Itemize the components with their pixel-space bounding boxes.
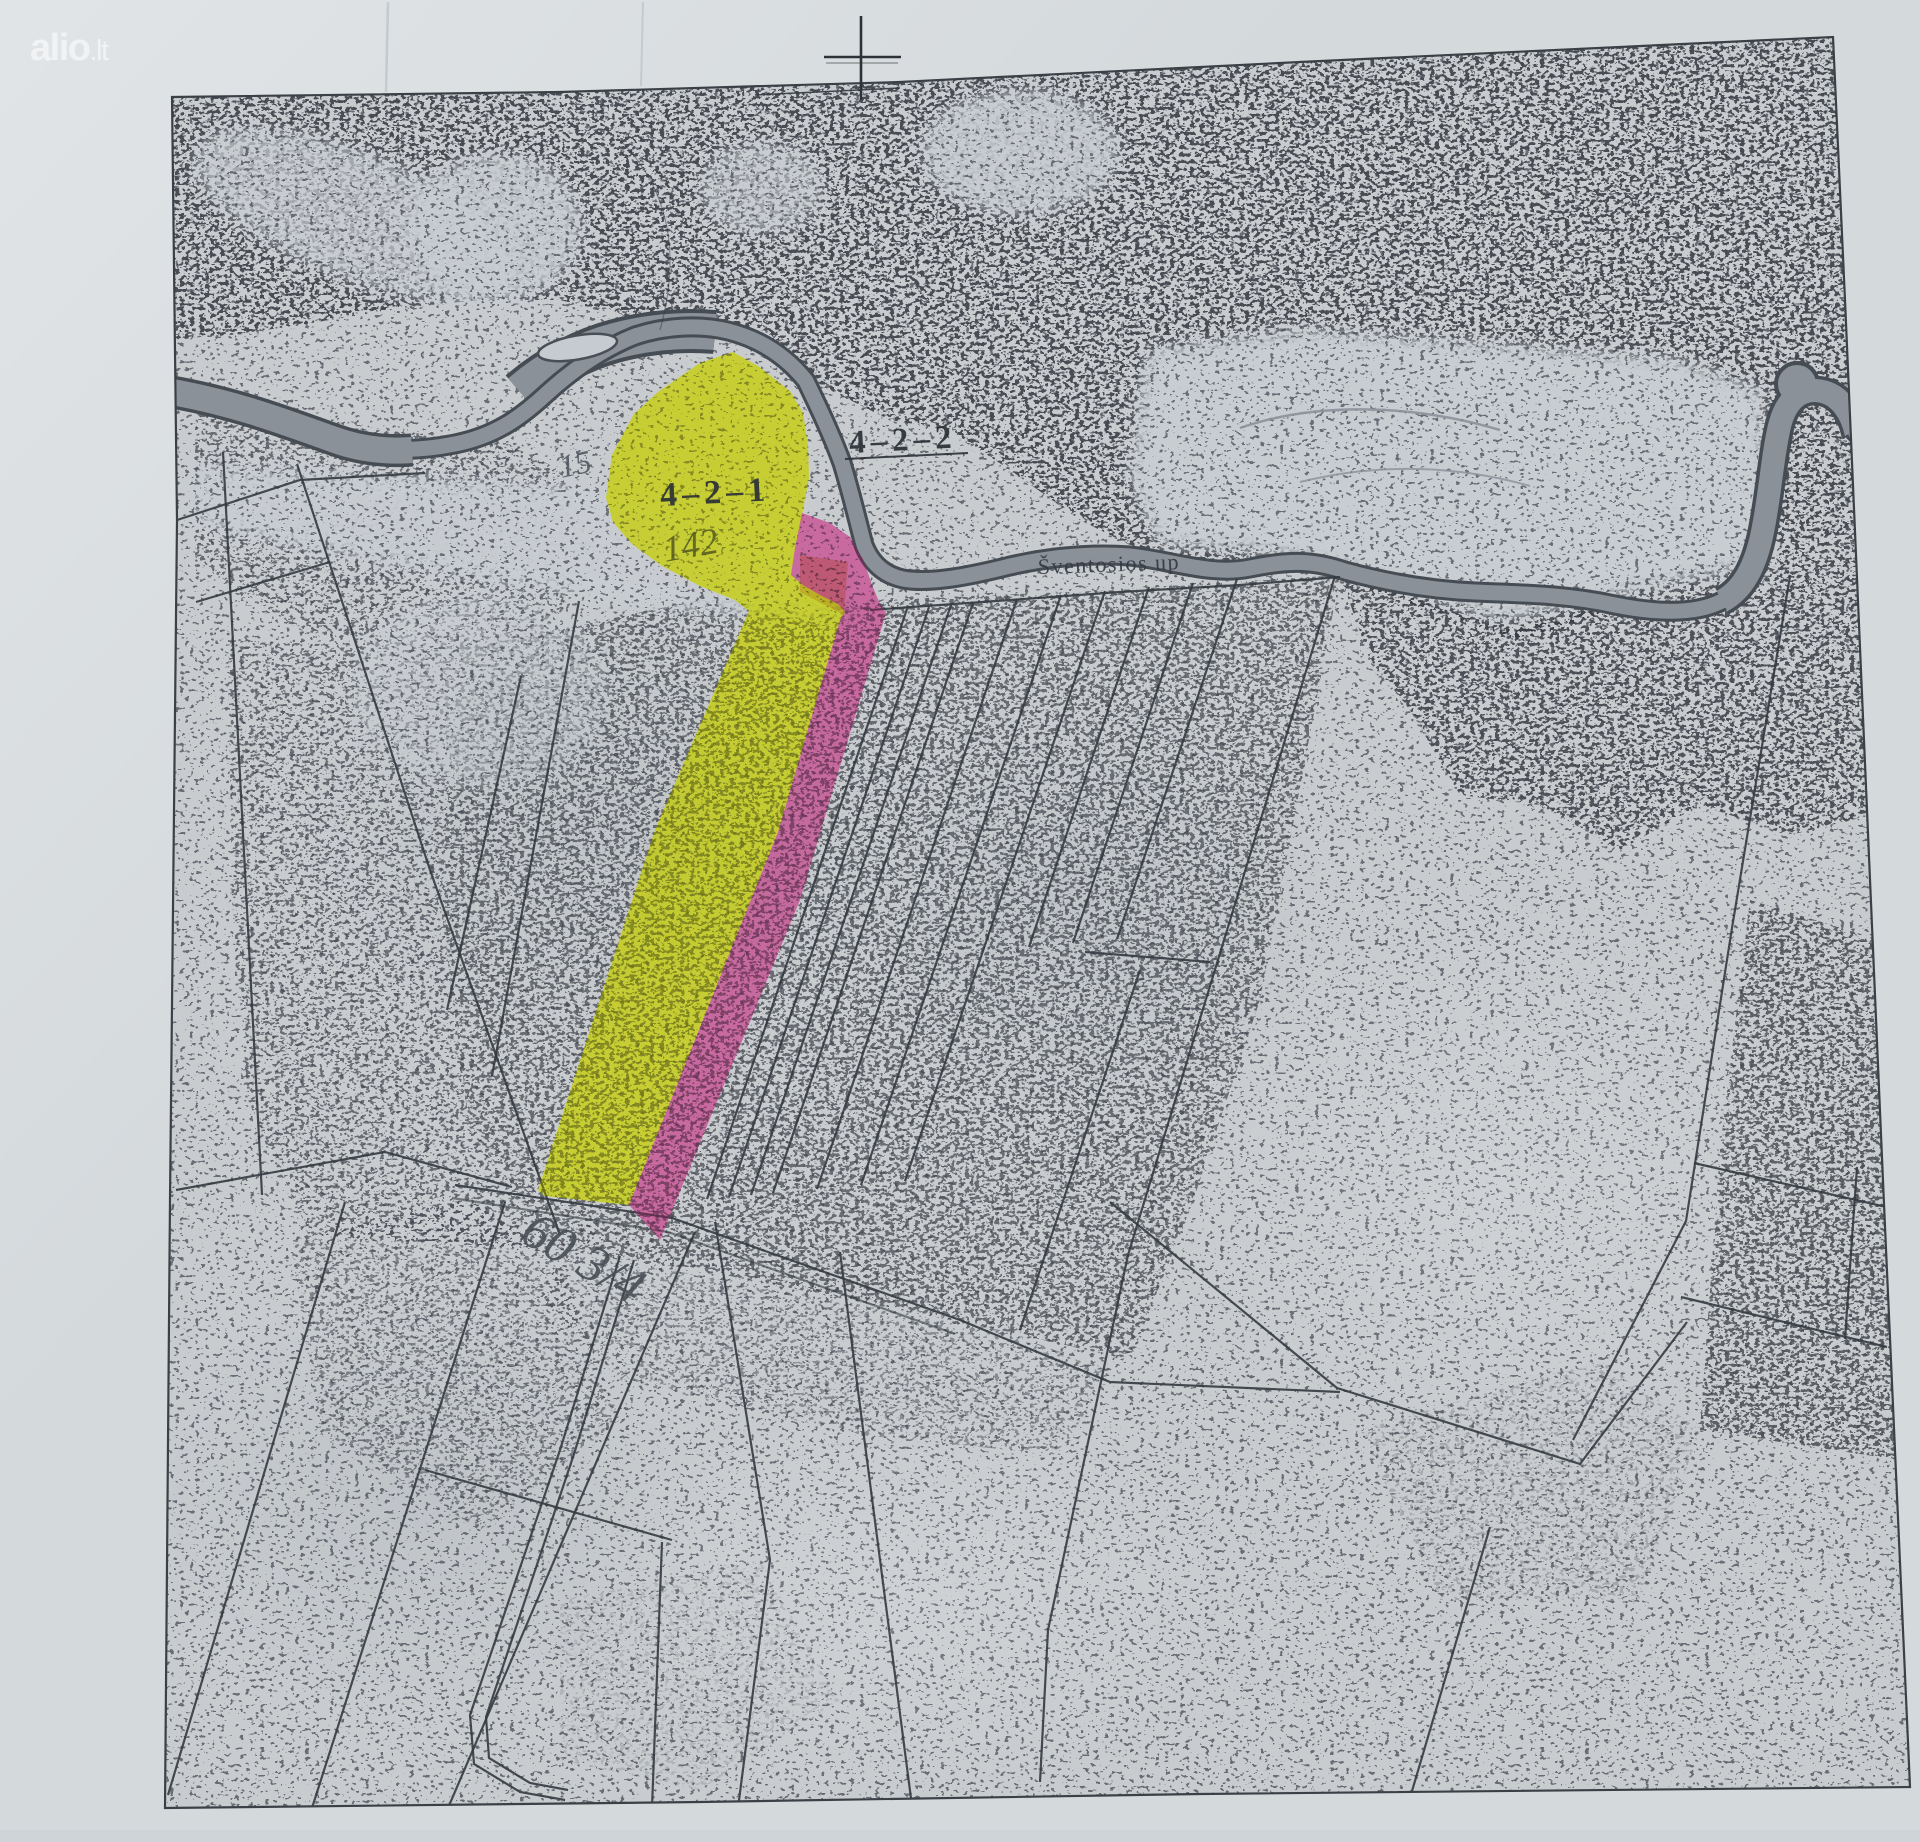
svg-text:4–2–1: 4–2–1: [659, 471, 771, 514]
svg-text:Šventosios up: Šventosios up: [1037, 549, 1180, 579]
